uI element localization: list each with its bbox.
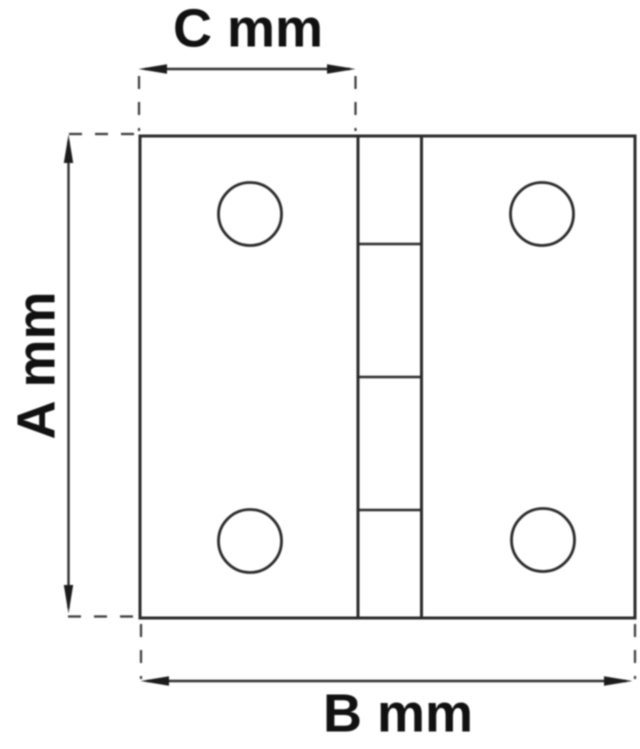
svg-text:A mm: A mm: [7, 291, 67, 439]
svg-text:B mm: B mm: [323, 684, 473, 744]
svg-text:C mm: C mm: [173, 0, 323, 59]
